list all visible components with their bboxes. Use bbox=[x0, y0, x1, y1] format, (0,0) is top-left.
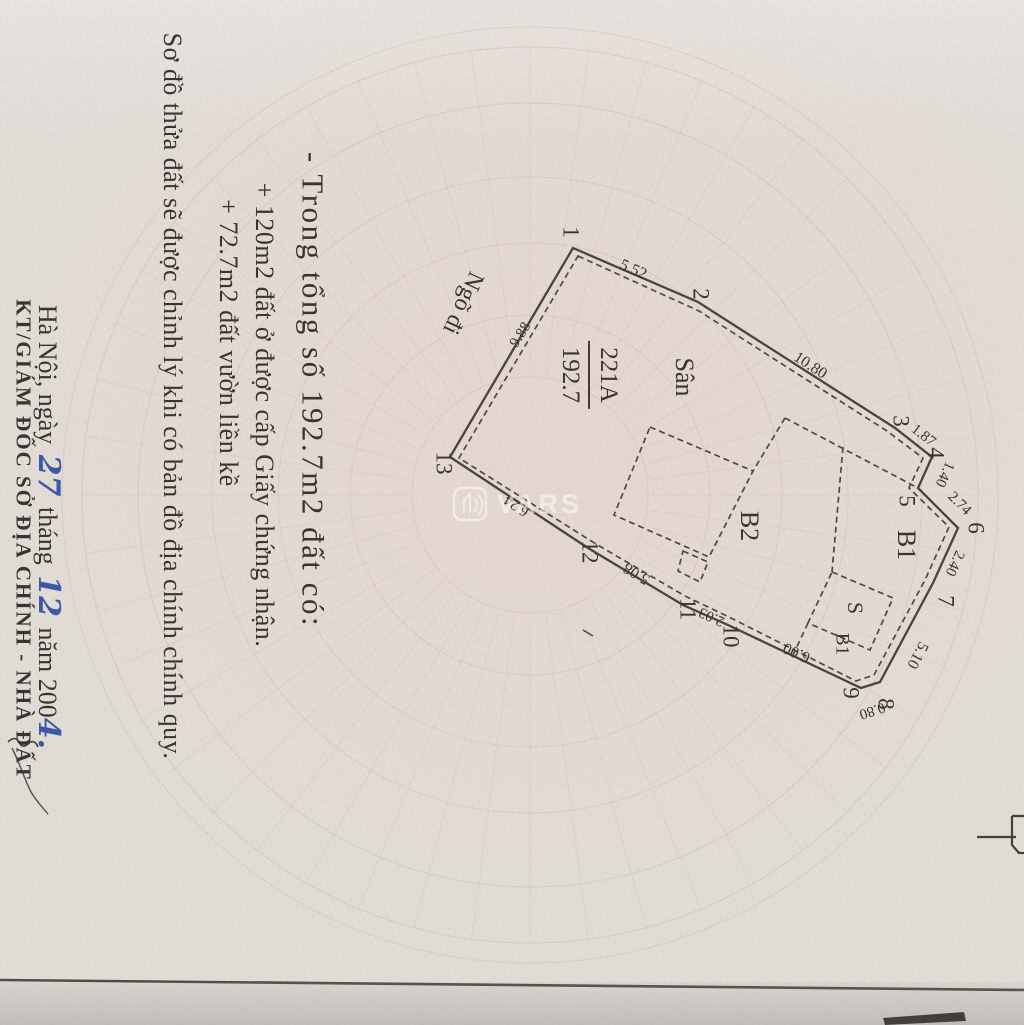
vertex-10: 10 bbox=[720, 625, 743, 648]
vertex-12: 12 bbox=[579, 541, 602, 564]
vertex-1: 1 bbox=[560, 226, 583, 238]
room-divider bbox=[832, 447, 843, 572]
vertex-7: 7 bbox=[935, 595, 958, 607]
revision-note: Sơ đồ thửa đất sẽ được chỉnh lý khi có b… bbox=[159, 33, 185, 760]
handwritten-year-digit: 4. bbox=[31, 718, 66, 749]
bottom-heavy-mark bbox=[883, 1012, 966, 1025]
vertex-3: 3 bbox=[890, 415, 913, 427]
label-s: S bbox=[844, 602, 866, 614]
corner-register-mark bbox=[977, 816, 1024, 853]
room-b2-outline bbox=[614, 427, 753, 557]
room-b1-left-edge bbox=[753, 418, 785, 471]
label-san: Sân bbox=[671, 358, 697, 397]
parcel-number: 221A bbox=[588, 341, 622, 409]
handwritten-month: 12 bbox=[31, 575, 66, 617]
label-b1-small: B1 bbox=[833, 633, 852, 655]
vertex-5: 5 bbox=[896, 495, 919, 507]
tick-mark bbox=[583, 630, 593, 636]
total-area-note: - Trong tổng số 192.7m2 đất có: bbox=[298, 152, 329, 628]
handwritten-day: 27 bbox=[31, 455, 66, 497]
room-b2-step bbox=[678, 551, 708, 582]
residential-area-note: + 120m2 đất ở được cấp Giấy chứng nhận. bbox=[251, 183, 277, 648]
date-prefix: Hà Nội, ngày bbox=[33, 305, 62, 444]
signature-title-line: KT/GIÁM ĐỐC SỞ ĐỊA CHÍNH - NHÀ ĐẤT bbox=[13, 299, 34, 781]
vertex-6: 6 bbox=[965, 522, 988, 534]
garden-area-note: + 72.7m2 đất vườn liền kề bbox=[215, 199, 241, 487]
vertex-13: 13 bbox=[433, 452, 456, 475]
scanned-land-certificate-page: - Trong tổng số 192.7m2 đất có: + 120m2 … bbox=[0, 0, 1024, 1025]
bottom-rule-line bbox=[0, 980, 1024, 990]
month-word: tháng bbox=[33, 507, 62, 565]
vertex-2: 2 bbox=[690, 288, 713, 300]
label-b1: B1 bbox=[893, 530, 919, 560]
year-word: năm 200 bbox=[33, 628, 62, 718]
room-b1-top-edge bbox=[785, 418, 918, 488]
label-b2: B2 bbox=[736, 511, 762, 541]
signature-date-line: Hà Nội, ngày 27 tháng 12 năm 2004. bbox=[33, 305, 63, 749]
parcel-area: 192.7 bbox=[556, 341, 588, 409]
parcel-fraction: 221A 192.7 bbox=[556, 341, 622, 409]
vertex-9: 9 bbox=[840, 687, 863, 699]
